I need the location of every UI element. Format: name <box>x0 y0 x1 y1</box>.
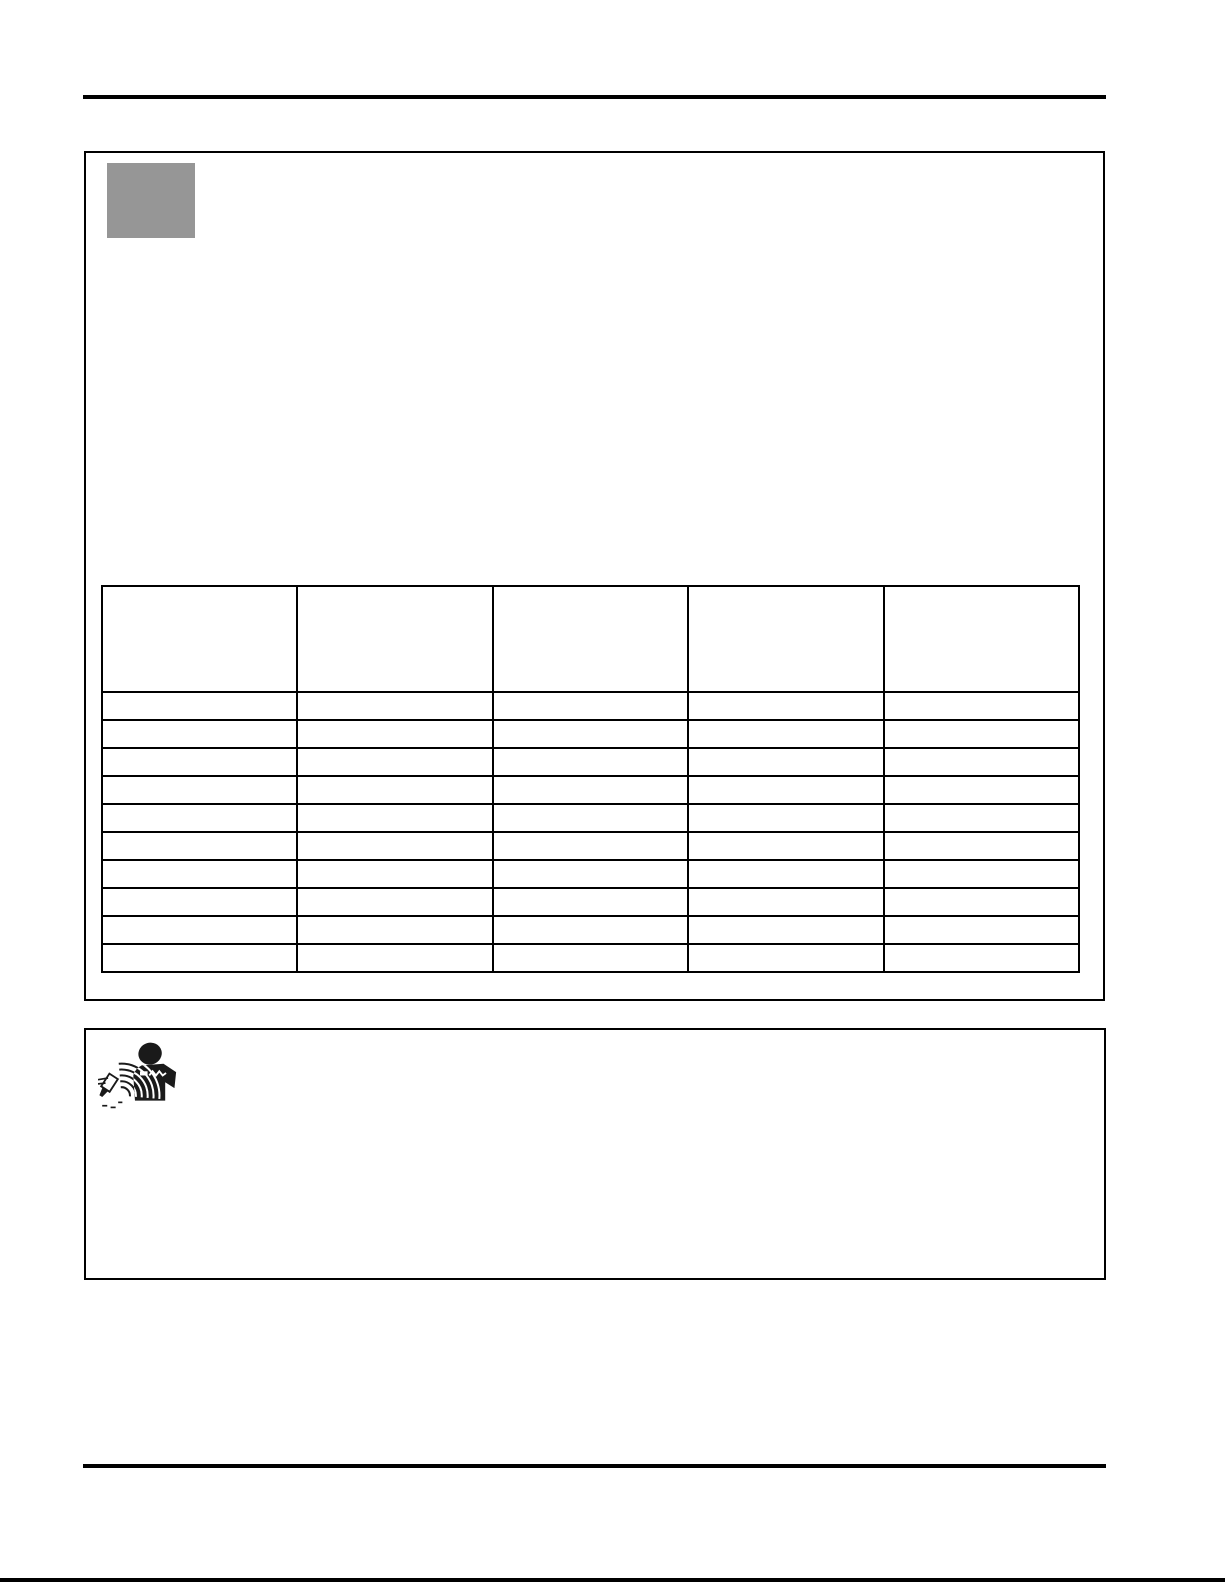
table-cell <box>688 748 883 776</box>
table-row <box>102 720 1079 748</box>
table-cell <box>688 776 883 804</box>
table-cell <box>493 916 688 944</box>
table-cell <box>102 692 297 720</box>
table-cell <box>493 832 688 860</box>
spec-table <box>101 585 1080 973</box>
table-cell <box>297 860 492 888</box>
table-cell <box>102 888 297 916</box>
table-cell <box>688 860 883 888</box>
table-cell <box>493 748 688 776</box>
table-row <box>102 692 1079 720</box>
header-rule <box>83 95 1106 99</box>
table-cell <box>102 832 297 860</box>
table-header-cell <box>297 586 492 692</box>
table-cell <box>102 916 297 944</box>
table-cell <box>297 720 492 748</box>
table-row <box>102 944 1079 972</box>
table-cell <box>102 776 297 804</box>
table-cell <box>884 916 1079 944</box>
table-cell <box>493 888 688 916</box>
table-header-cell <box>688 586 883 692</box>
table-cell <box>493 776 688 804</box>
table-cell <box>102 720 297 748</box>
table-cell <box>297 944 492 972</box>
table-cell <box>297 692 492 720</box>
table-cell <box>493 692 688 720</box>
table-cell <box>102 860 297 888</box>
table-cell <box>297 748 492 776</box>
table-cell <box>297 916 492 944</box>
table-cell <box>297 888 492 916</box>
table-cell <box>688 804 883 832</box>
page-edge-line <box>0 1578 1225 1582</box>
table-cell <box>884 776 1079 804</box>
table-cell <box>688 916 883 944</box>
table-row <box>102 916 1079 944</box>
table-cell <box>688 888 883 916</box>
table-cell <box>884 944 1079 972</box>
table-cell <box>102 944 297 972</box>
table-cell <box>102 748 297 776</box>
content-box <box>84 151 1105 1001</box>
table-row <box>102 748 1079 776</box>
table-cell <box>688 832 883 860</box>
table-header-cell <box>493 586 688 692</box>
table-row <box>102 888 1079 916</box>
table-cell <box>688 720 883 748</box>
table-cell <box>297 804 492 832</box>
footer-rule <box>83 1464 1106 1468</box>
noise-hazard-icon <box>98 1040 182 1116</box>
warning-box <box>84 1028 1106 1280</box>
table-cell <box>884 804 1079 832</box>
table-cell <box>297 832 492 860</box>
image-placeholder <box>107 163 195 238</box>
document-page <box>0 0 1225 1585</box>
table-header-row <box>102 586 1079 692</box>
spec-table-head <box>102 586 1079 692</box>
table-cell <box>688 692 883 720</box>
table-cell <box>297 776 492 804</box>
table-cell <box>884 860 1079 888</box>
table-cell <box>884 720 1079 748</box>
table-header-cell <box>884 586 1079 692</box>
spec-table-body <box>102 692 1079 972</box>
table-cell <box>884 692 1079 720</box>
table-cell <box>493 860 688 888</box>
table-cell <box>884 888 1079 916</box>
table-row <box>102 832 1079 860</box>
table-cell <box>688 944 883 972</box>
table-header-cell <box>102 586 297 692</box>
table-cell <box>884 748 1079 776</box>
table-row <box>102 860 1079 888</box>
table-row <box>102 776 1079 804</box>
table-row <box>102 804 1079 832</box>
table-cell <box>493 944 688 972</box>
table-cell <box>102 804 297 832</box>
table-cell <box>493 720 688 748</box>
table-cell <box>884 832 1079 860</box>
table-cell <box>493 804 688 832</box>
